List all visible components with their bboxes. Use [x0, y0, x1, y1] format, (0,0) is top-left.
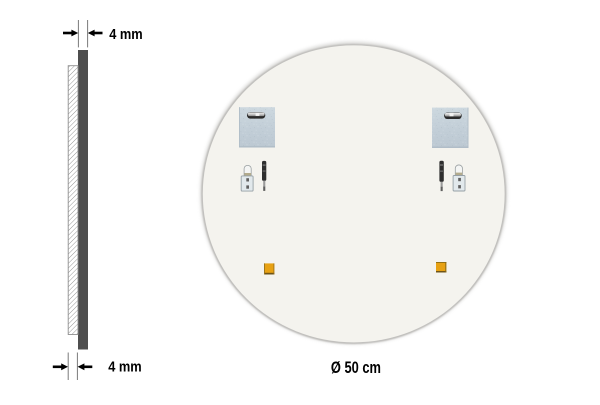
- svg-text:Ø 50 cm: Ø 50 cm: [331, 358, 381, 377]
- svg-text:4 mm: 4 mm: [108, 360, 142, 376]
- svg-text:4 mm: 4 mm: [109, 27, 143, 43]
